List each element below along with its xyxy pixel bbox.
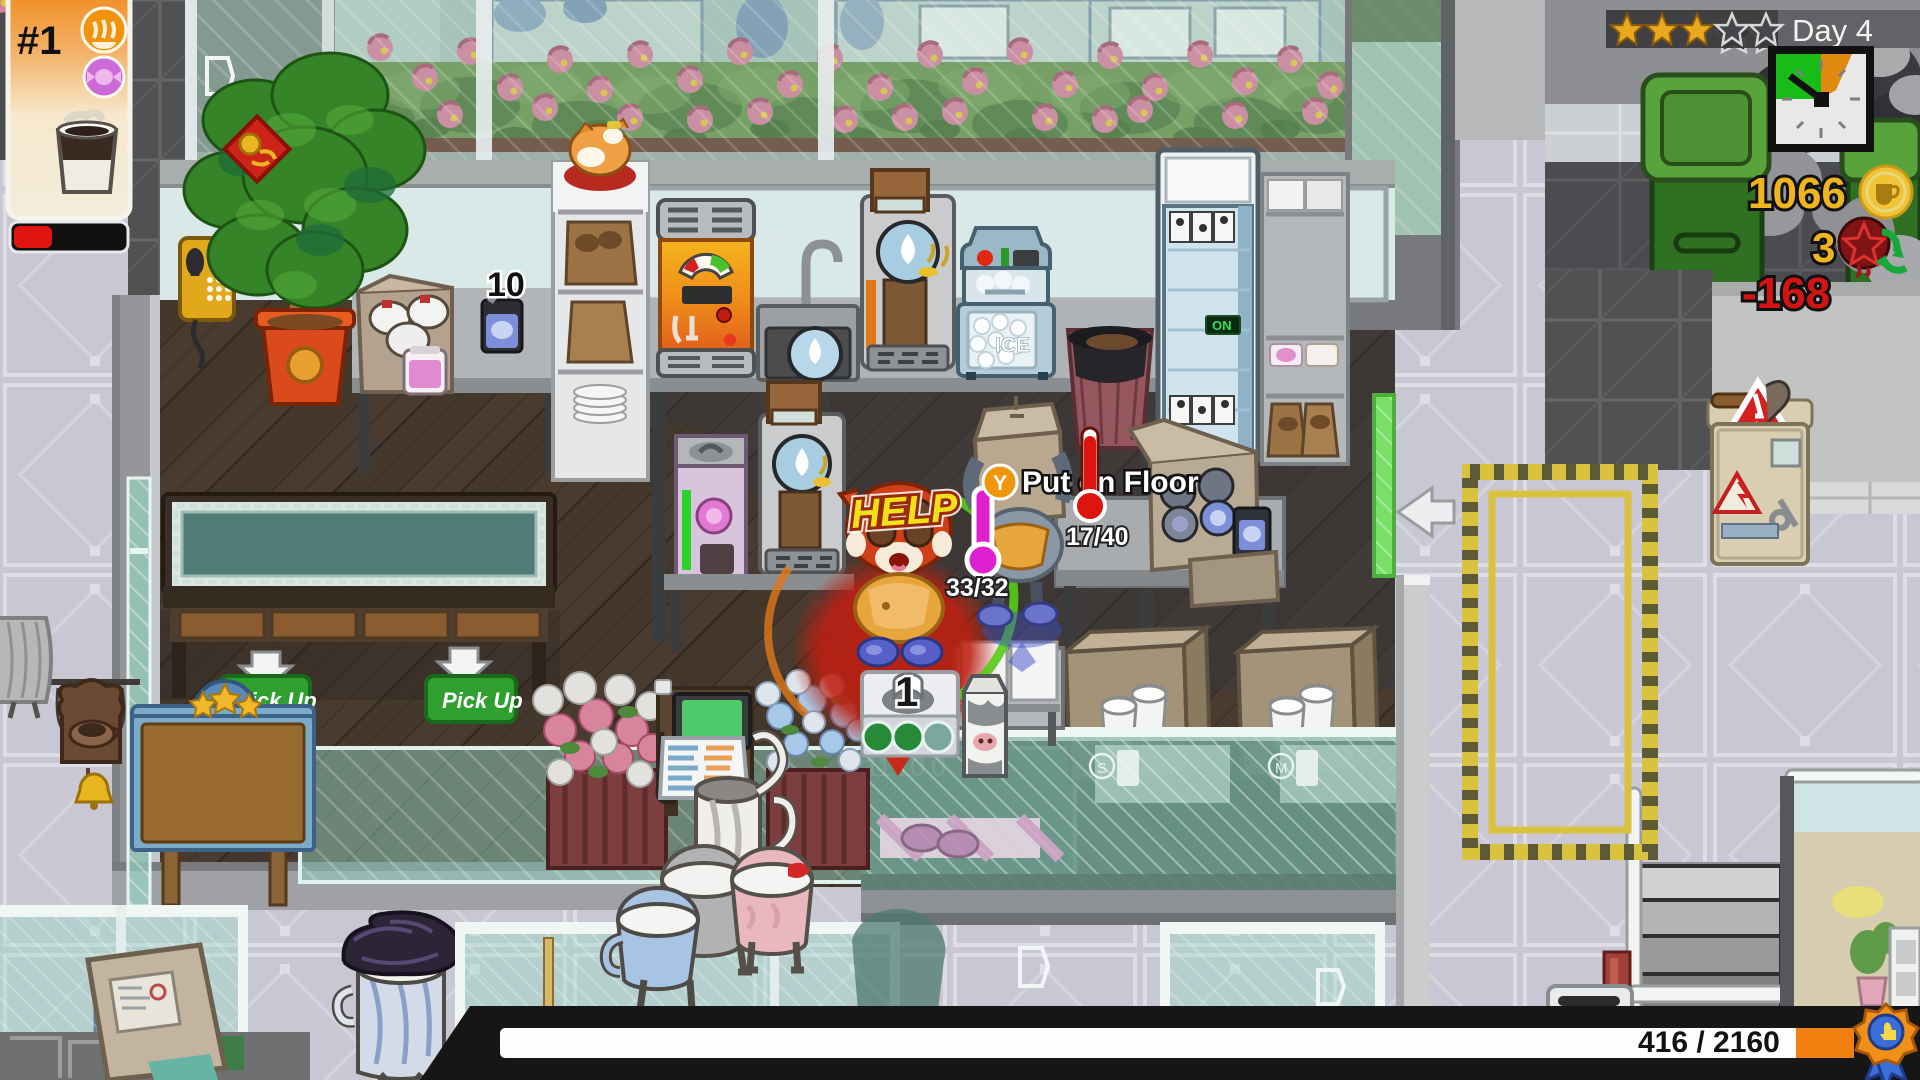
svg-text:-168: -168 bbox=[1742, 269, 1830, 318]
svg-text:HELP: HELP bbox=[850, 486, 960, 537]
svg-text:17/40: 17/40 bbox=[1066, 523, 1129, 551]
svg-text:ICE: ICE bbox=[995, 334, 1030, 357]
svg-text:33/32: 33/32 bbox=[946, 574, 1009, 602]
svg-text:1: 1 bbox=[895, 668, 918, 715]
svg-text:M: M bbox=[1275, 760, 1288, 777]
svg-text:S: S bbox=[1097, 760, 1107, 777]
svg-text:10: 10 bbox=[487, 266, 525, 304]
svg-text:Day 4: Day 4 bbox=[1792, 13, 1873, 48]
svg-text:ON: ON bbox=[1212, 318, 1232, 333]
svg-text:Put on Floor: Put on Floor bbox=[1022, 466, 1199, 499]
svg-text:Pick Up: Pick Up bbox=[442, 688, 523, 713]
svg-text:1066: 1066 bbox=[1748, 169, 1846, 218]
svg-text:#1: #1 bbox=[17, 19, 62, 63]
svg-text:3: 3 bbox=[1812, 224, 1835, 271]
svg-text:416 / 2160: 416 / 2160 bbox=[1638, 1026, 1780, 1059]
svg-text:Y: Y bbox=[993, 472, 1007, 495]
